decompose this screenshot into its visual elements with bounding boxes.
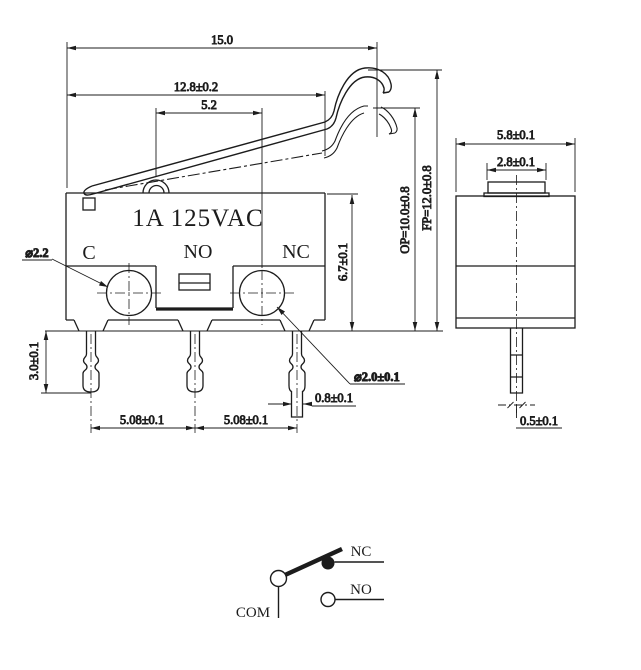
leader-dia-2-0 — [277, 307, 350, 384]
front-labels: 1A 125VAC C NO NC — [82, 205, 310, 264]
dim-button-offset: 5.2 — [201, 98, 217, 112]
terminal-hole-c — [97, 263, 161, 325]
dim-body-height: 6.7±0.1 — [336, 243, 350, 281]
lever-operating-position — [105, 106, 397, 190]
leader-dia-2-2 — [52, 259, 108, 287]
dim-pin-width: 0.8±0.1 — [315, 391, 353, 405]
no-contact-circle — [321, 593, 335, 607]
dim-pin-length: 3.0±0.1 — [27, 342, 41, 380]
dim-button-width: 2.8±0.1 — [497, 155, 535, 169]
com-contact-circle — [271, 571, 287, 587]
pin-bosses — [74, 320, 314, 331]
dim-hole-diameter-c: ⌀2.2 — [25, 246, 48, 260]
side-dimensions: 5.8±0.1 2.8±0.1 0.5±0.1 — [456, 128, 575, 428]
plunger-dome — [143, 180, 169, 193]
schematic-nc-label: NC — [351, 544, 372, 560]
dim-lever-length: 12.8±0.2 — [174, 80, 218, 94]
terminal-label-nc: NC — [282, 241, 310, 263]
dim-operating-position: OP=10.0±0.8 — [398, 186, 412, 253]
dim-pin-pitch-right: 5.08±0.1 — [224, 413, 268, 427]
dim-free-position: FP=12.0±0.8 — [420, 165, 434, 230]
schematic-com-label: COM — [236, 605, 270, 621]
terminal-pins — [83, 331, 305, 433]
side-case-outline — [456, 196, 575, 328]
terminal-hole-nc — [230, 270, 294, 325]
rating-label: 1A 125VAC — [132, 205, 264, 232]
side-view — [456, 175, 575, 413]
dim-total-length: 15.0 — [211, 33, 233, 47]
side-case-split-lines — [456, 266, 575, 318]
schematic-no-label: NO — [350, 582, 372, 598]
microswitch-technical-drawing: 15.0 12.8±0.2 5.2 6.7±0.1 OP=10.0±0.8 FP… — [0, 0, 641, 670]
dim-pin-thickness: 0.5±0.1 — [520, 414, 558, 428]
mould-mark-square — [83, 198, 95, 210]
no-terminal-slot — [179, 274, 210, 290]
dim-body-depth: 5.8±0.1 — [497, 128, 535, 142]
lever-free-position — [84, 68, 391, 195]
dim-hole-diameter-nc: ⌀2.0±0.1 — [354, 370, 400, 384]
terminal-label-c: C — [82, 242, 95, 264]
drawing-svg: 15.0 12.8±0.2 5.2 6.7±0.1 OP=10.0±0.8 FP… — [0, 0, 641, 670]
nc-contact-dot — [322, 557, 335, 570]
circuit-schematic: COM NC NO — [236, 544, 384, 621]
dim-pin-pitch-left: 5.08±0.1 — [120, 413, 164, 427]
terminal-label-no: NO — [184, 241, 213, 263]
